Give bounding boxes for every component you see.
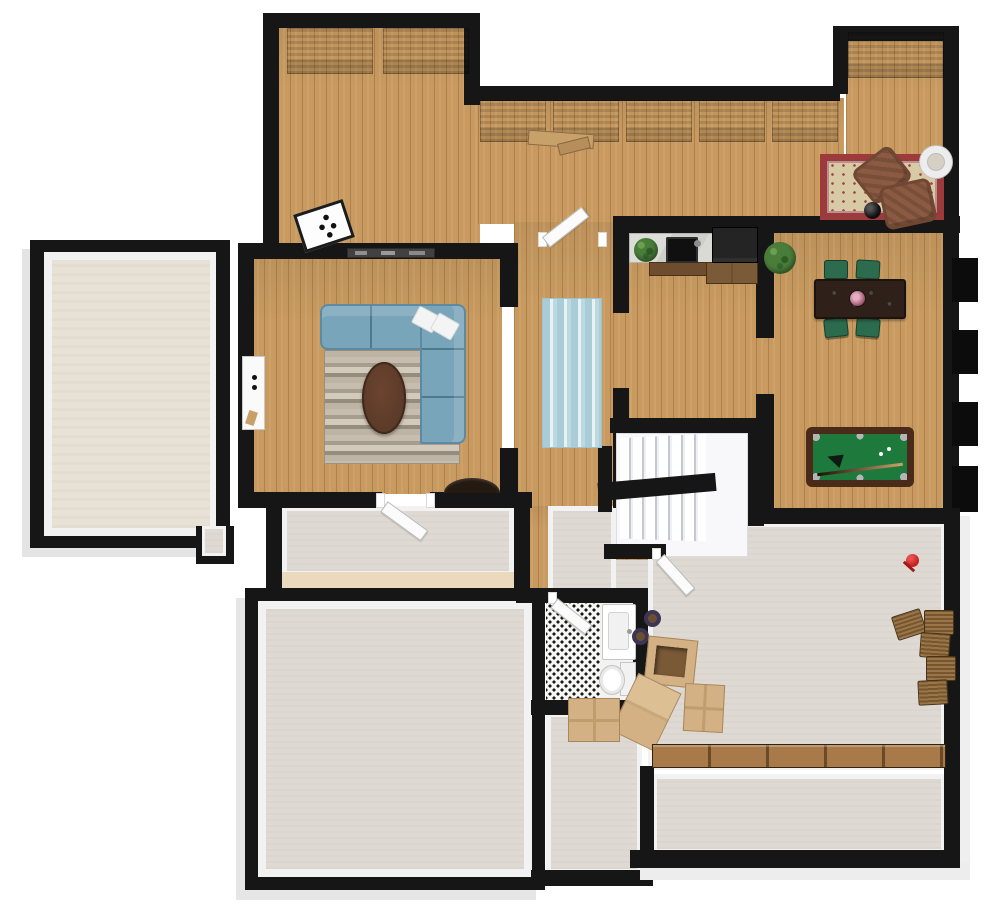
wall-stairs-left — [598, 446, 612, 512]
wall-nook-left-upper — [833, 26, 848, 94]
pool-ball-2 — [887, 447, 891, 451]
wall-bathroom-top — [516, 588, 648, 603]
white-wall-cabinet — [242, 356, 265, 430]
wall-top-left-left — [263, 13, 279, 259]
media-device-2 — [381, 251, 395, 255]
wall-strip-left — [640, 766, 654, 862]
window-recess-4 — [952, 466, 978, 512]
kitchen-faucet — [694, 240, 701, 247]
wall-mudroom-right — [514, 506, 530, 598]
cabinet-knob-2 — [252, 385, 257, 390]
vanity-faucet — [627, 629, 632, 634]
oval-coffee-table — [362, 362, 406, 434]
wall-stairs-top — [610, 418, 762, 433]
wall-mudroom-left — [266, 506, 282, 598]
green-chair-1 — [824, 260, 848, 279]
wall-nook-right — [943, 26, 959, 232]
wall-arm-bottom — [531, 870, 653, 886]
room-bottom-left-floor — [266, 609, 524, 869]
wall-shelf-8 — [848, 32, 944, 78]
red-toy — [902, 552, 924, 578]
flower-centerpiece — [850, 291, 865, 306]
window-recess-3 — [952, 402, 978, 446]
wall-strip-bottom — [630, 850, 960, 868]
window-recess-2 — [952, 330, 978, 374]
cabinet-knob-1 — [252, 375, 257, 380]
wall-shelf-1 — [287, 28, 373, 74]
wall-top-left-top — [263, 13, 479, 28]
bathroom-vanity — [602, 604, 636, 660]
kitchen-sink — [666, 237, 698, 263]
room-left-storage-floor — [52, 260, 210, 528]
green-chair-4 — [855, 317, 881, 338]
wall-kitchen-left-upper — [613, 233, 629, 313]
green-chair-2 — [856, 259, 881, 279]
floor-lamp — [864, 202, 881, 219]
cardboard-box-small — [683, 683, 725, 733]
wall-dining-bottom — [756, 508, 958, 524]
wicker-basket-3 — [919, 632, 951, 659]
room-bottom-strip-floor — [652, 774, 946, 854]
potted-plant — [764, 242, 796, 274]
green-chair-3 — [823, 317, 849, 338]
wall-top-middle-top — [476, 86, 840, 101]
kitchen-lower-cabinet-doors — [706, 262, 758, 284]
wicker-basket-4 — [926, 656, 956, 681]
wall-kitchen-right-upper — [756, 216, 774, 338]
media-device-1 — [355, 251, 367, 255]
wicker-basket-2 — [924, 610, 954, 635]
wall-living-bottom-left — [238, 492, 382, 508]
floor-pouf-2 — [632, 628, 649, 645]
wall-hall-stub-top — [500, 243, 518, 307]
blue-runner-rug — [542, 298, 602, 448]
wall-shelf-5 — [626, 100, 692, 142]
floor-pouf-1 — [644, 610, 661, 627]
wall-shelf-7 — [772, 100, 838, 142]
refrigerator — [712, 227, 758, 263]
sectional-sofa-horizontal — [320, 304, 426, 350]
vanity-basin — [608, 612, 629, 650]
counter-plant — [634, 238, 658, 262]
cabinet-item — [245, 410, 258, 426]
wall-stairs-right — [748, 418, 764, 526]
toilet-bowl — [599, 665, 625, 695]
pool-table — [806, 427, 914, 487]
floor-plan — [0, 0, 1000, 904]
wall-shelf-6 — [699, 100, 765, 142]
cardboard-box-closed — [568, 698, 620, 742]
long-wood-bench — [652, 744, 946, 768]
door-jamb-hall-top-right — [598, 232, 607, 247]
pool-ball-1 — [879, 452, 883, 456]
wall-shelf-2 — [383, 28, 469, 74]
left-room-notch-floor — [202, 526, 226, 556]
door-jamb-mudroom-right — [426, 493, 435, 508]
media-console — [347, 248, 435, 258]
wicker-basket-5 — [917, 679, 948, 706]
pool-rack-triangle — [825, 450, 844, 468]
open-box-interior — [654, 645, 688, 677]
round-mirror — [920, 146, 952, 178]
window-recess-1 — [952, 258, 978, 302]
media-device-3 — [409, 251, 425, 255]
